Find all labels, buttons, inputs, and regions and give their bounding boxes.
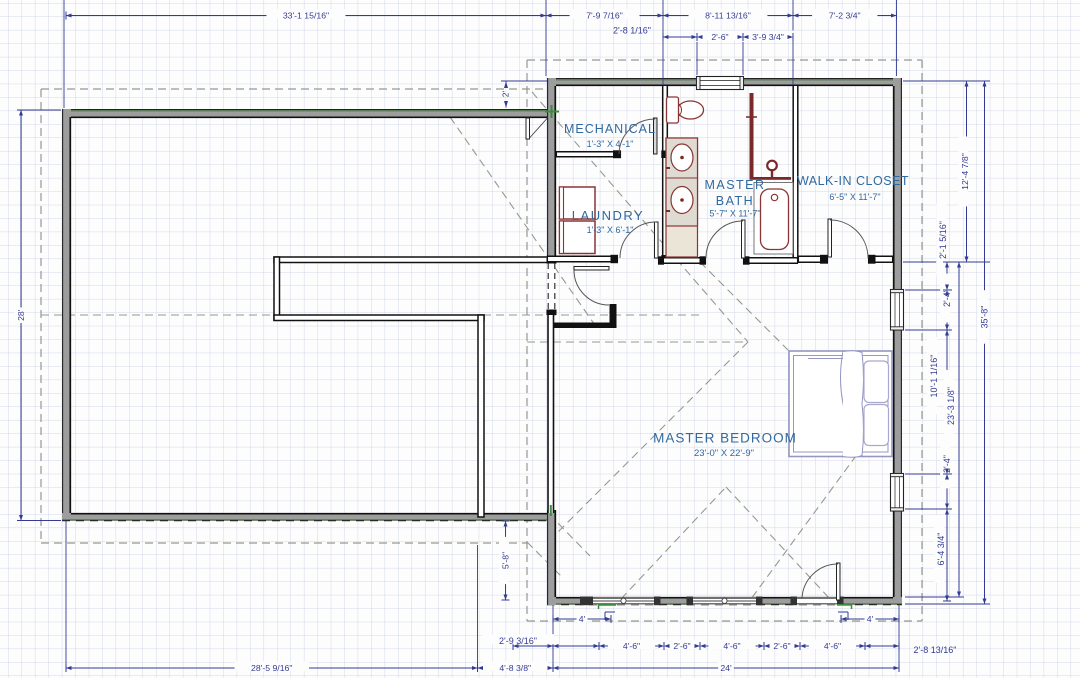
svg-text:4': 4': [867, 614, 874, 624]
svg-text:2'-8 1/16": 2'-8 1/16": [613, 25, 651, 35]
svg-text:MECHANICAL: MECHANICAL: [564, 122, 656, 136]
svg-text:12'-4 7/8": 12'-4 7/8": [960, 153, 970, 190]
svg-text:4': 4': [579, 614, 586, 624]
svg-text:2'-9 3/16": 2'-9 3/16": [499, 636, 537, 646]
svg-text:28'-5 9/16": 28'-5 9/16": [251, 663, 292, 673]
svg-text:7'-9 7/16": 7'-9 7/16": [586, 10, 623, 20]
svg-text:23'-3 1/8": 23'-3 1/8": [946, 387, 956, 425]
svg-text:4'-6": 4'-6": [824, 641, 841, 651]
svg-text:MASTER: MASTER: [704, 178, 765, 192]
svg-text:6'-4 3/4": 6'-4 3/4": [936, 533, 946, 566]
svg-text:2': 2': [501, 90, 511, 97]
svg-text:24': 24': [720, 663, 732, 673]
svg-text:5'-8": 5'-8": [500, 552, 510, 569]
svg-text:2'-6": 2'-6": [673, 641, 690, 651]
svg-text:33'-1 15/16": 33'-1 15/16": [283, 10, 329, 20]
svg-text:2'-8 13/16": 2'-8 13/16": [914, 645, 957, 655]
svg-text:1'-3" X 6'-1": 1'-3" X 6'-1": [587, 225, 634, 235]
svg-text:MASTER BEDROOM: MASTER BEDROOM: [653, 430, 797, 445]
svg-text:6'-5" X 11'-7": 6'-5" X 11'-7": [829, 192, 880, 202]
svg-text:7'-2 3/4": 7'-2 3/4": [829, 10, 861, 20]
svg-text:2'-6": 2'-6": [711, 32, 728, 42]
svg-text:28': 28': [16, 309, 26, 321]
svg-text:8'-11 13/16": 8'-11 13/16": [705, 10, 751, 20]
svg-text:4'-8 3/8": 4'-8 3/8": [499, 663, 531, 673]
svg-text:3'-9 3/4": 3'-9 3/4": [752, 32, 784, 42]
svg-text:1'-3" X 4'-1": 1'-3" X 4'-1": [587, 139, 634, 149]
svg-text:35'-8": 35'-8": [979, 306, 989, 329]
svg-text:BATH: BATH: [716, 194, 754, 208]
svg-text:5'-7" X 11'-7": 5'-7" X 11'-7": [709, 208, 760, 218]
svg-text:WALK-IN CLOSET: WALK-IN CLOSET: [797, 174, 909, 188]
svg-text:23'-0" X 22'-9": 23'-0" X 22'-9": [694, 448, 754, 459]
svg-text:4'-6": 4'-6": [623, 641, 640, 651]
svg-text:2'-6": 2'-6": [773, 641, 790, 651]
svg-text:10'-1 1/16": 10'-1 1/16": [929, 355, 939, 398]
svg-text:LAUNDRY: LAUNDRY: [572, 208, 644, 223]
svg-text:4'-6": 4'-6": [723, 641, 740, 651]
svg-text:2'-1 5/16": 2'-1 5/16": [938, 221, 948, 259]
